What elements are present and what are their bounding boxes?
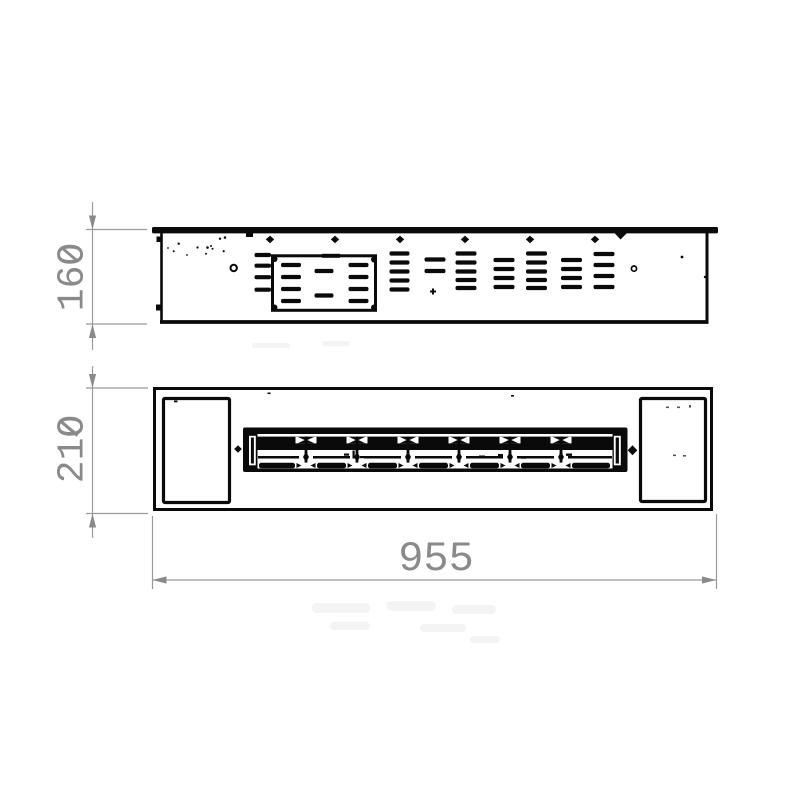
- svg-text:16O: 16O: [52, 243, 95, 311]
- svg-text:21O: 21O: [52, 415, 95, 483]
- svg-text:955: 955: [398, 535, 474, 583]
